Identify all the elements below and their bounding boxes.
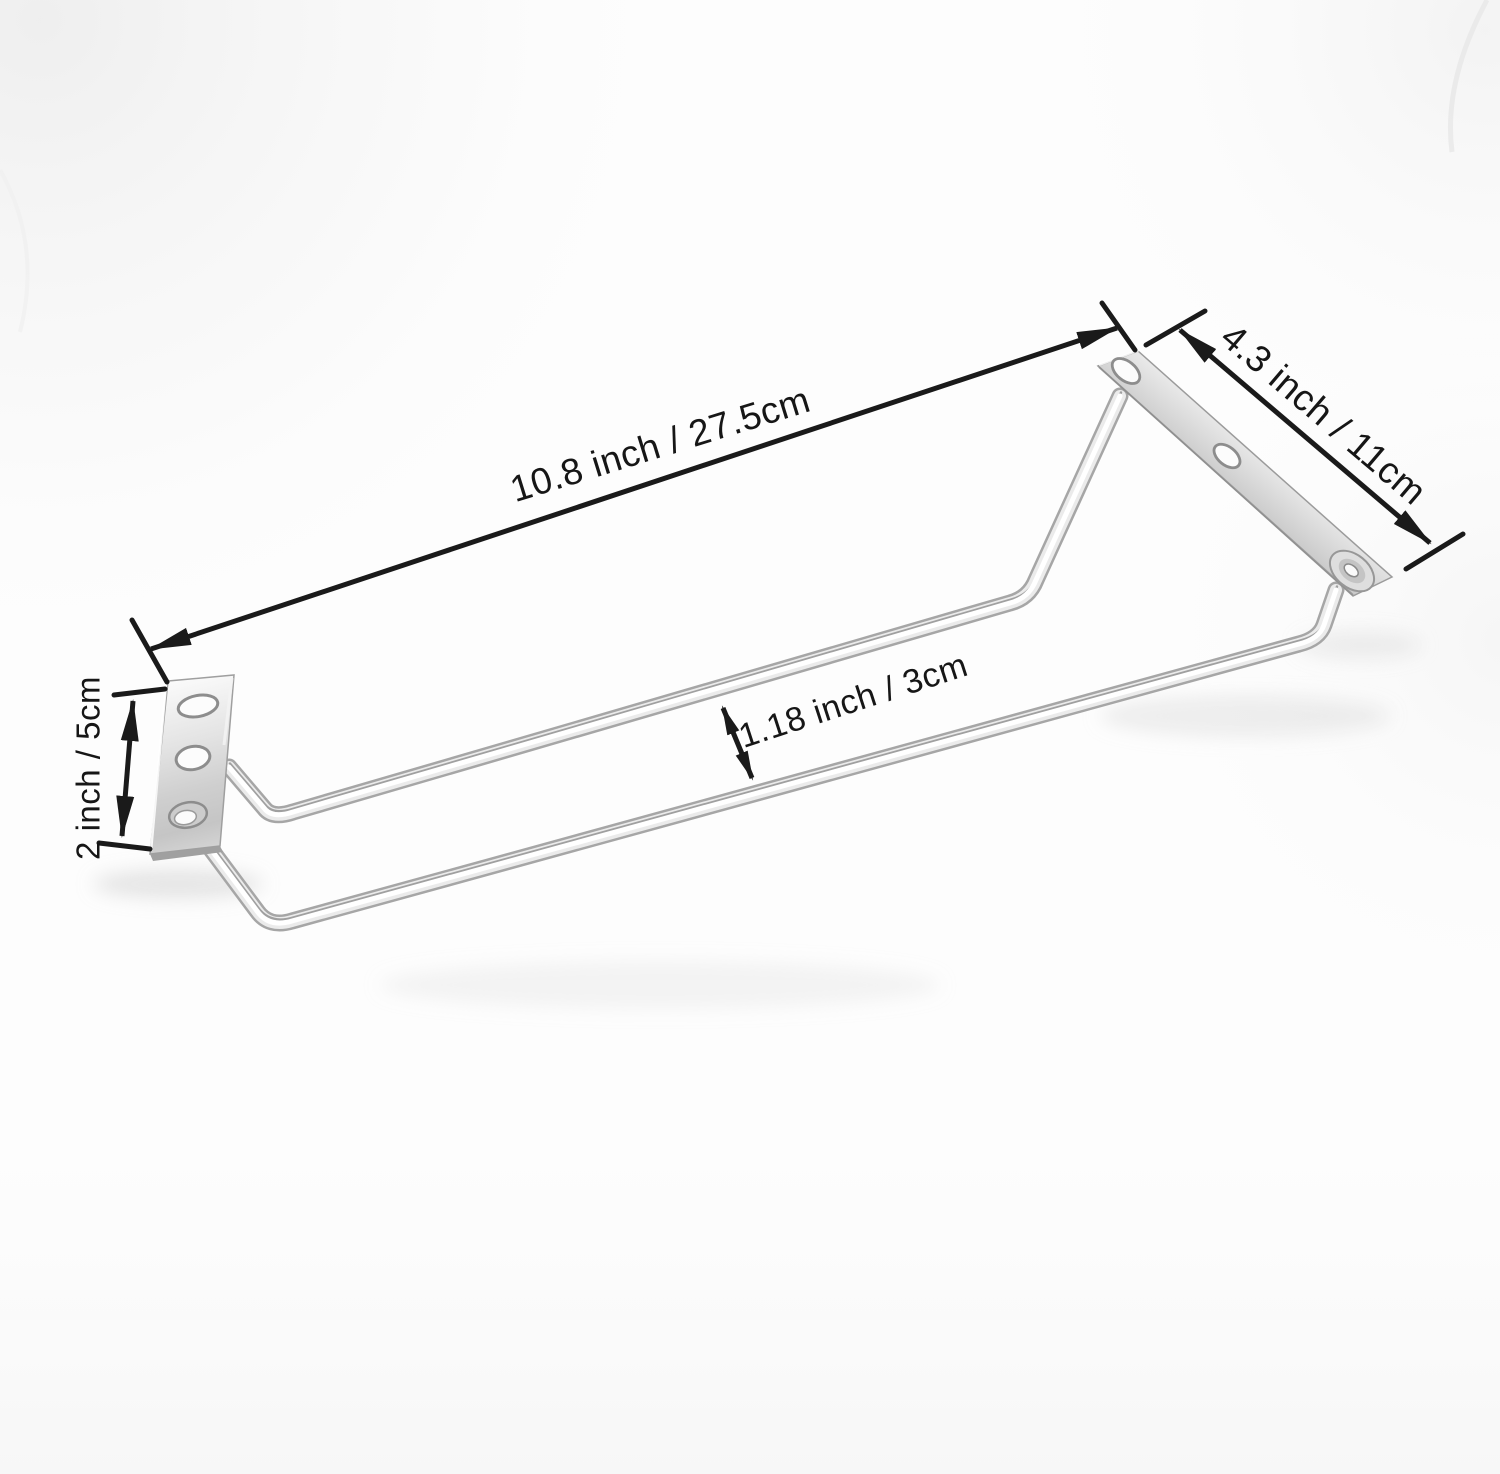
shadow-lower-rail [380, 961, 940, 1009]
shadow-right-rails [1100, 695, 1390, 737]
dim-plate-width-label: 2 inch / 5cm [70, 676, 107, 860]
product-photo-canvas: 10.8 inch / 27.5cm 4.3 inch / 11cm 2 inc… [0, 0, 1500, 1474]
dimension-diagram: 10.8 inch / 27.5cm 4.3 inch / 11cm 2 inc… [0, 0, 1500, 1474]
